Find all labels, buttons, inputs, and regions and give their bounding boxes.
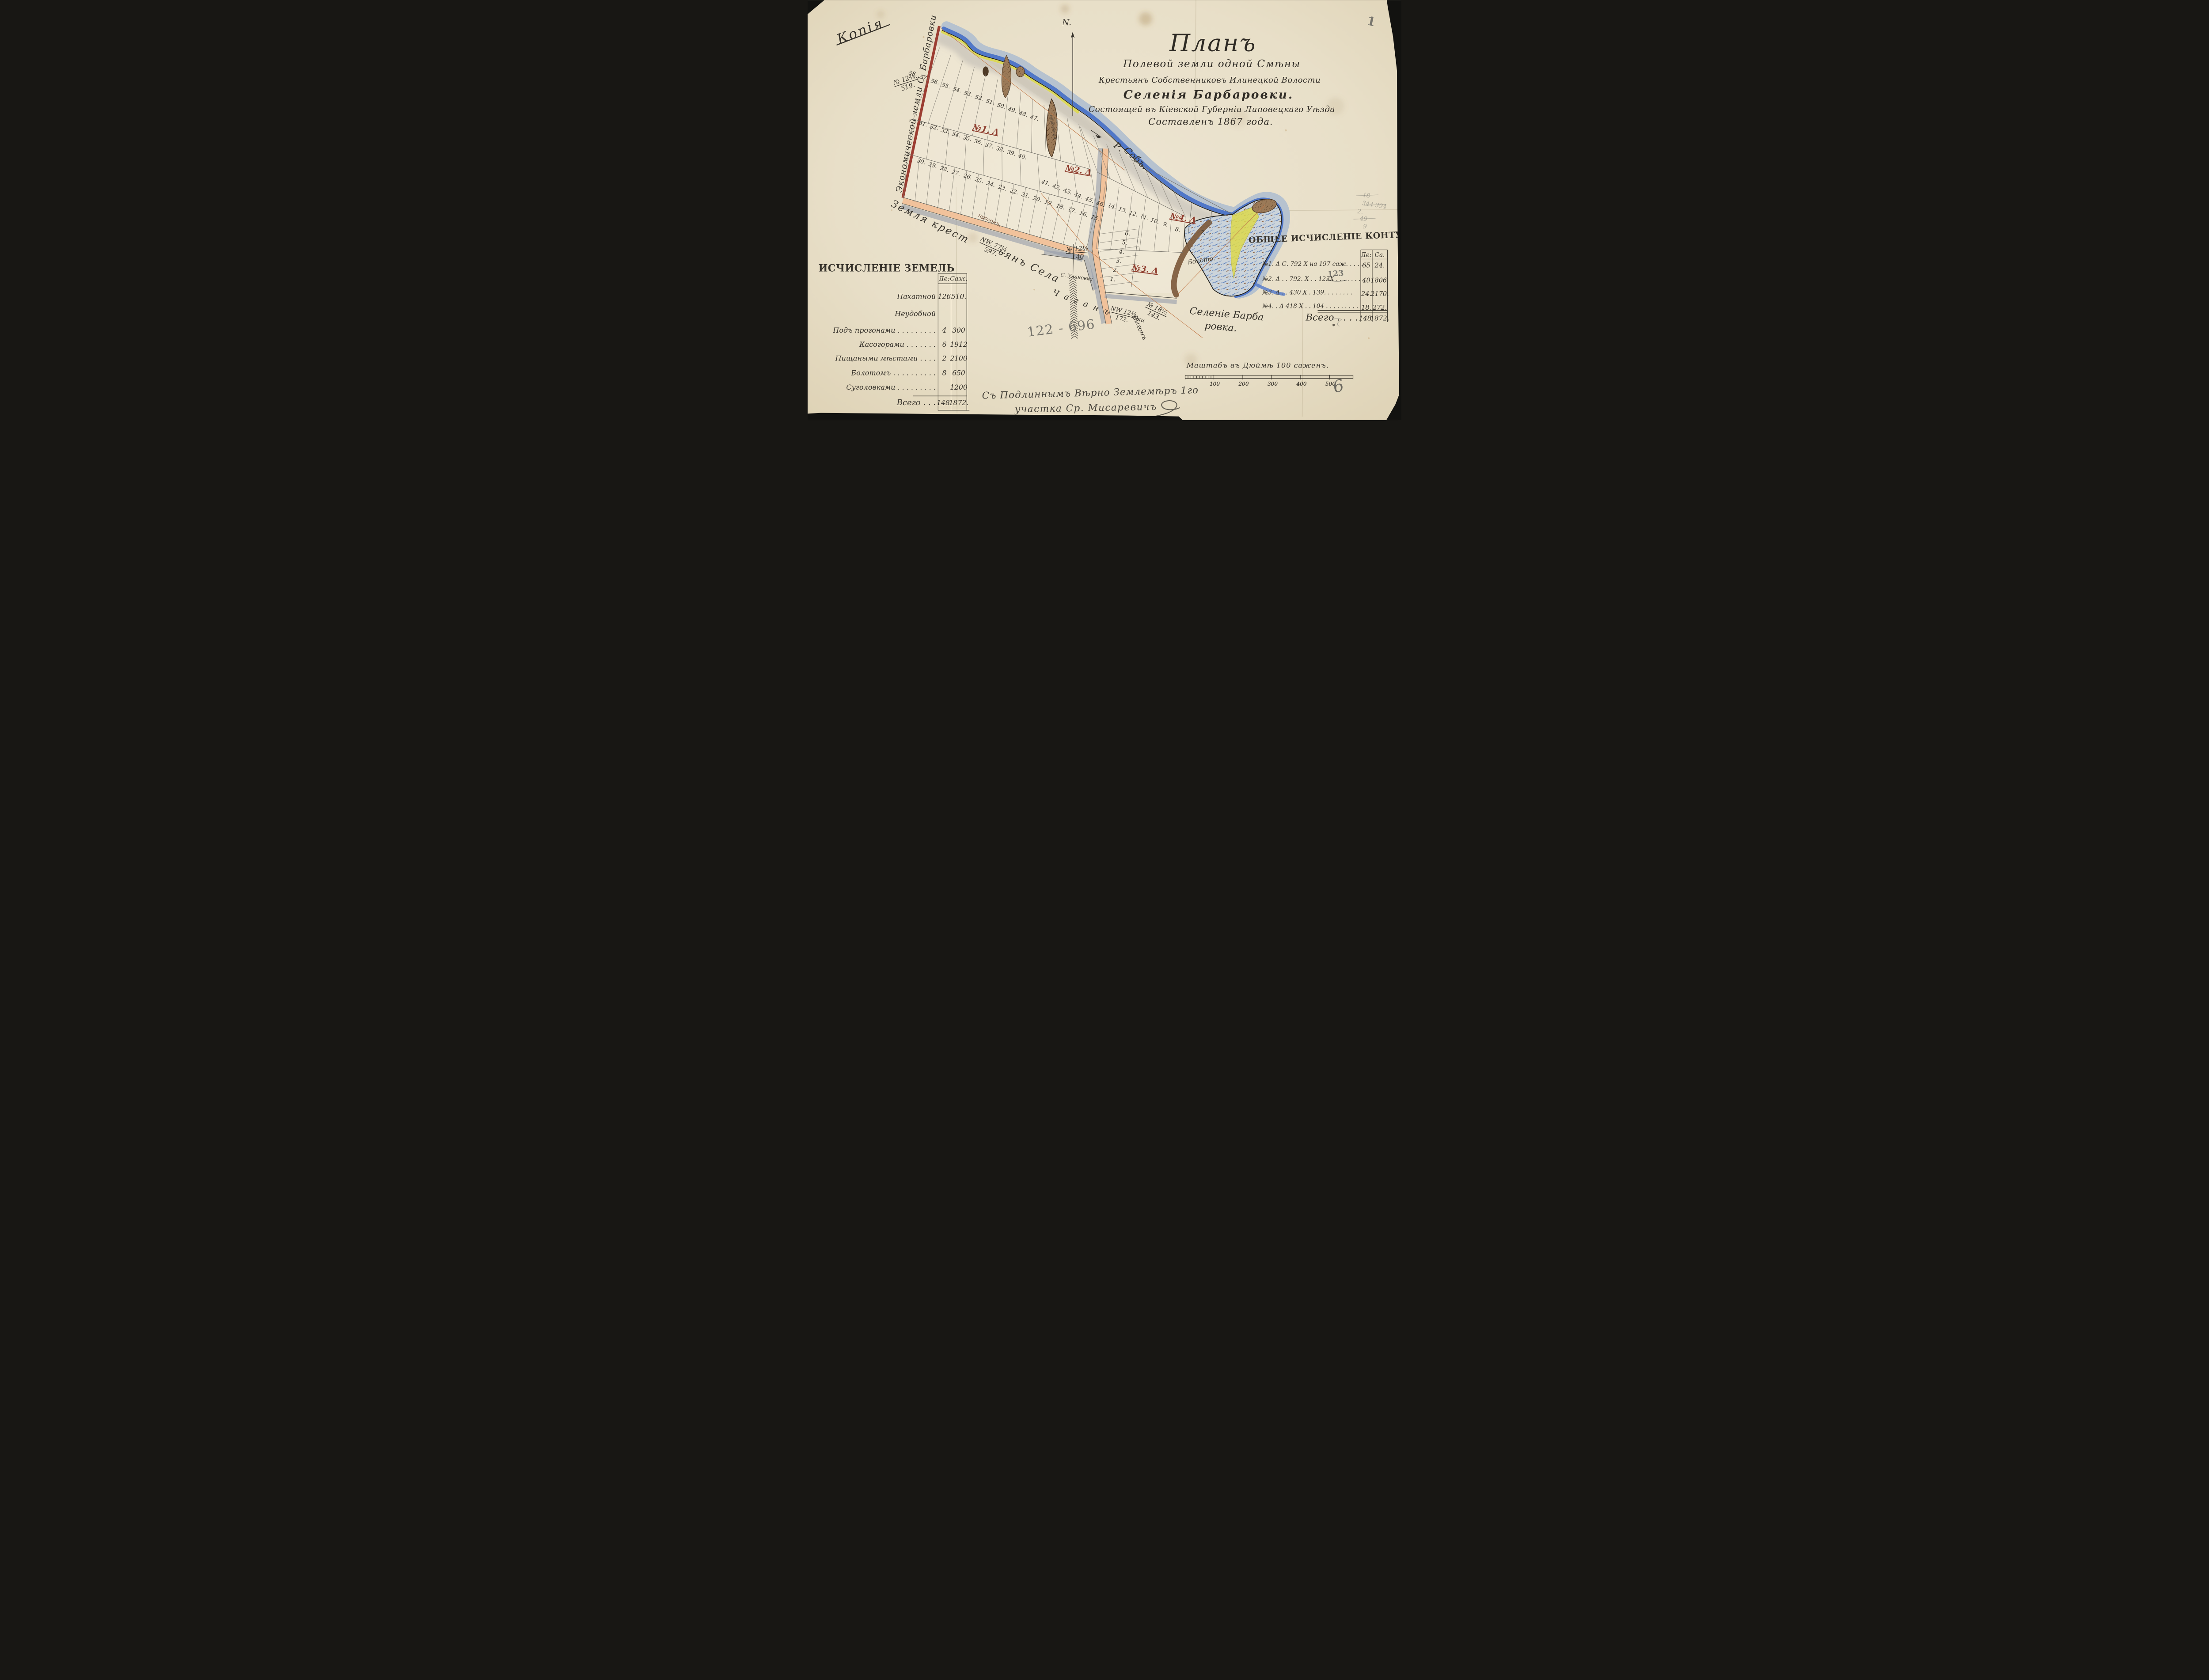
right-table-row-des: 40 [1362, 277, 1370, 284]
right-table-row-des: 24. [1361, 291, 1371, 298]
right-table-row-des: 18. [1361, 304, 1371, 311]
pencil-scribble-text: 2. [1357, 208, 1363, 216]
left-table-row-des: 8 [942, 369, 947, 377]
scale-tick-label: 300 [1268, 381, 1278, 387]
right-table-row-label: №3. Δ . . 430 Х . 139. . . . . . . . [1262, 289, 1353, 296]
plot-number: 1. [1110, 276, 1116, 283]
title-village-line: Селенія Барбаровки. [1123, 88, 1294, 102]
scale-tick-label: 200 [1238, 381, 1249, 387]
left-table-row-des: 2 [942, 354, 947, 362]
right-table-row-saj: 24. [1374, 262, 1385, 269]
left-table-row-label: Неудобной [894, 310, 936, 318]
title-line-2: Полевой земли одной Смѣны [1123, 58, 1300, 70]
left-table-row-saj: 1912 [950, 341, 967, 349]
right-table-row-label: №2. Δ . . 792. Х . . 123Х . . . . . . . [1262, 276, 1361, 283]
right-table-total-saj: 1872. [1370, 315, 1389, 322]
title-line-5: Состоящей въ Кіевской Губерніи Липовецка… [1089, 105, 1335, 114]
title-line-3: Крестьянъ Собственниковъ Илинецкой Волос… [1098, 76, 1321, 85]
right-table-row-label: №1. Δ С. 792 Х на 197 саж. . . . . . [1262, 261, 1367, 268]
scale-label: Маштабъ въ Дюймѣ 100 саженъ. [1186, 361, 1329, 370]
right-table-total-label: Всего . . . . [1305, 312, 1358, 323]
right-table-row-saj: 2170. [1370, 291, 1389, 298]
right-table-row-saj: 272. [1372, 304, 1387, 311]
left-table-row-saj: 2100 [949, 354, 968, 362]
plan-title: Планъ [1169, 29, 1256, 57]
left-table-col-saj: Саж. [950, 276, 967, 283]
left-table-total-saj: 1872. [949, 399, 968, 407]
right-table-row-des: 65 [1362, 262, 1370, 269]
scale-tick-label: 100 [1210, 381, 1220, 387]
plot-number: 6. [1125, 230, 1131, 237]
scale-tick-label: 400 [1296, 381, 1307, 387]
right-table-row-saj: 1806. [1370, 277, 1389, 284]
left-table-row-label: Болотомъ . . . . . . . . . . [850, 369, 936, 377]
fraction-denominator: 140 [1071, 253, 1084, 261]
plot-number: 3. [1116, 257, 1122, 264]
scanned-plan-page: 100200300400500 Копія 1 N. Планъ Полевой… [808, 0, 1401, 420]
left-table-row-des: 6 [942, 341, 947, 349]
right-table-col-des: Де: [1361, 251, 1372, 258]
left-table-row-label: Подъ прогонами . . . . . . . . . [832, 326, 936, 334]
left-table-row-label: Касогорами . . . . . . . [859, 340, 936, 349]
left-table-row-saj: 650 [952, 369, 965, 377]
plot-number: 5. [1122, 239, 1127, 246]
left-table-row-label: Пахатной [896, 292, 936, 300]
left-table-row-label: Пищаными мѣстами . . . . [835, 354, 936, 362]
plot-number: 4. [1118, 248, 1124, 255]
left-table-col-des: Де: [938, 276, 949, 283]
north-label: N. [1062, 18, 1071, 27]
left-table-row-saj: 1200 [950, 383, 968, 391]
plan-canvas: 100200300400500 Копія 1 N. Планъ Полевой… [808, 0, 1401, 420]
left-table-row-saj: 300 [952, 326, 965, 334]
left-table-total-label: Всего . . . [896, 398, 936, 407]
left-table-row-des: 4 [942, 326, 947, 334]
title-line-6: Составленъ 1867 года. [1148, 117, 1273, 127]
right-table-row-label: №4. . Δ 418 Х . . 104 . . . . . . . . . [1262, 303, 1359, 310]
left-table-row-saj: 510. [951, 292, 967, 300]
left-table-row-des: 126 [938, 292, 951, 300]
plot-number: 2. [1112, 266, 1119, 273]
left-table-title: ИСЧИСЛЕНІЕ ЗЕМЕЛЬ [819, 263, 955, 274]
right-table-col-saj: Са. [1375, 251, 1385, 258]
left-table-row-label: Суголовками . . . . . . . . . [846, 383, 936, 391]
